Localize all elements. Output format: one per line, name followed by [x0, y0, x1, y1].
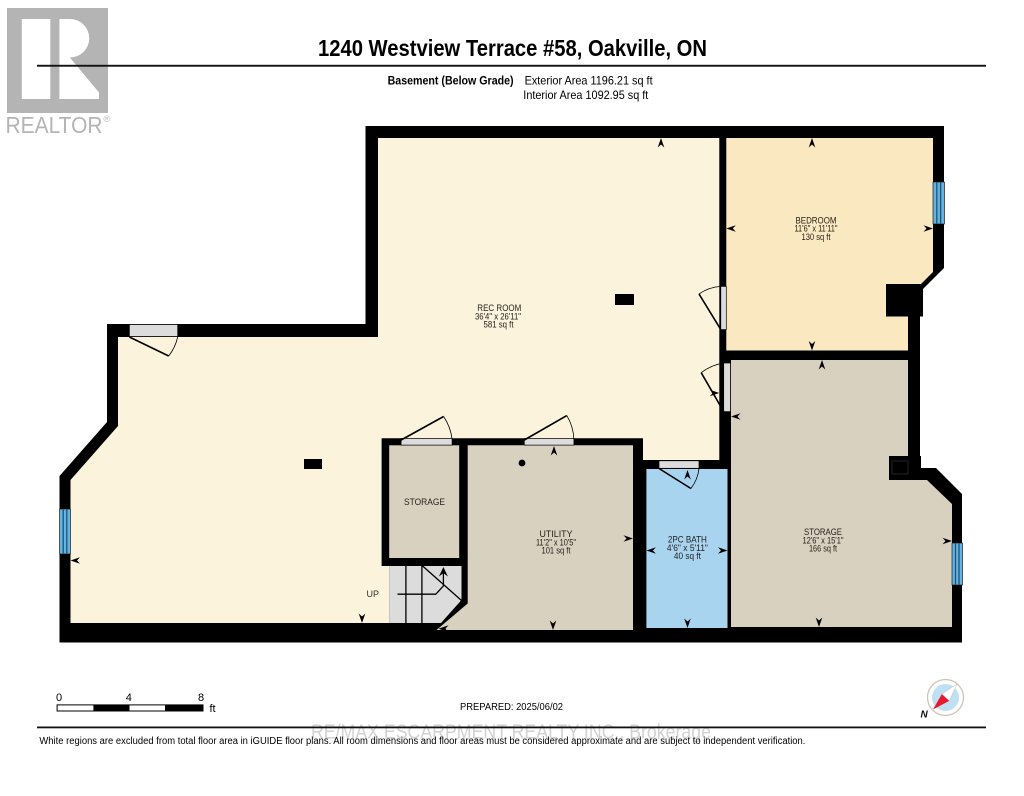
svg-text:REALTOR: REALTOR [6, 112, 103, 138]
svg-text:Basement (Below Grade): Basement (Below Grade) [388, 74, 514, 88]
svg-text:Exterior Area 1196.21 sq ft: Exterior Area 1196.21 sq ft [525, 74, 654, 88]
svg-text:166 sq ft: 166 sq ft [809, 544, 837, 554]
svg-text:®: ® [104, 114, 111, 124]
svg-text:130 sq ft: 130 sq ft [802, 232, 831, 242]
svg-text:8: 8 [198, 692, 204, 704]
svg-text:PREPARED: 2025/06/02: PREPARED: 2025/06/02 [460, 702, 563, 713]
svg-text:581 sq ft: 581 sq ft [484, 320, 514, 330]
svg-text:0: 0 [56, 692, 62, 704]
svg-text:White regions are excluded fro: White regions are excluded from total fl… [39, 736, 805, 747]
svg-text:Interior Area 1092.95 sq ft: Interior Area 1092.95 sq ft [523, 88, 649, 102]
svg-text:UP: UP [367, 589, 380, 599]
svg-text:40 sq ft: 40 sq ft [674, 551, 701, 561]
svg-text:4: 4 [126, 692, 132, 704]
svg-text:101 sq ft: 101 sq ft [542, 546, 571, 556]
svg-text:ft: ft [210, 703, 216, 715]
svg-text:1240 Westview Terrace #58, Oak: 1240 Westview Terrace #58, Oakville, ON [318, 35, 707, 61]
svg-text:N: N [921, 710, 929, 721]
svg-text:STORAGE: STORAGE [404, 497, 445, 507]
